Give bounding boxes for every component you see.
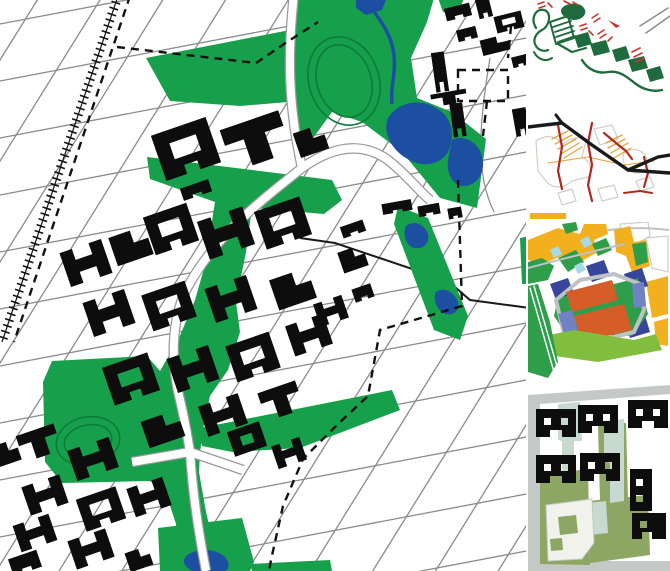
masterplan-map [0, 0, 526, 571]
landuse-plan-graphic [528, 222, 670, 378]
sidebar-thumbnails [526, 0, 670, 571]
thumbnail-site-plan[interactable] [528, 383, 670, 571]
railway-line [2, 0, 118, 342]
thumbnail-landuse-plan[interactable] [528, 222, 670, 378]
thumbnail-road-network-diagram[interactable] [528, 113, 670, 219]
thumbnail-concept-sketch[interactable] [528, 0, 670, 110]
presentation-board [0, 0, 670, 571]
masterplan-map-graphic [0, 0, 526, 571]
concept-sketch-graphic [528, 0, 670, 110]
site-plan-graphic [528, 383, 670, 571]
road-network-graphic [528, 113, 670, 219]
